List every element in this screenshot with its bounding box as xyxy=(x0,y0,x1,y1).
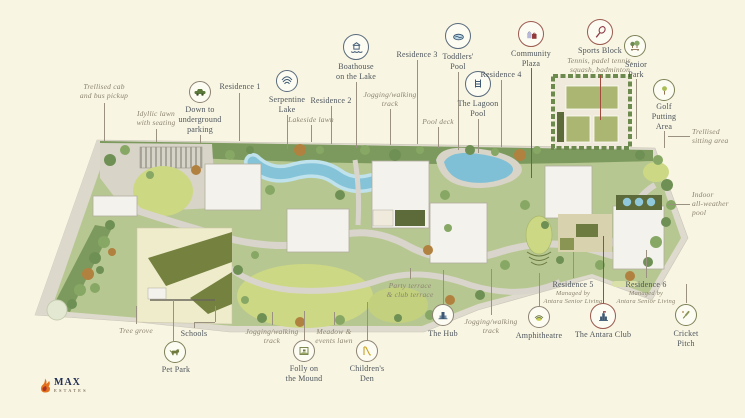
label-cricket-pitch: Cricket Pitch xyxy=(674,329,699,349)
label-folly: Folly on the Mound xyxy=(286,364,323,384)
residence-1-building xyxy=(205,164,261,210)
label-senior-park: Senior Park xyxy=(625,60,647,80)
label-golf-putting: Golf Putting Area xyxy=(652,102,677,131)
residence-4-building xyxy=(430,203,487,263)
leader-sports-block xyxy=(600,75,601,120)
logo-brand-subtext: ESTATES xyxy=(54,388,88,394)
label-toddlers-pool: Toddlers' Pool xyxy=(442,52,473,72)
label-pool-deck: Pool deck xyxy=(422,117,454,126)
slide-icon xyxy=(356,340,378,362)
label-tree-grove: Tree grove xyxy=(119,326,153,335)
sports-block-feature xyxy=(553,76,630,148)
label-underground-parking: Down to underground parking xyxy=(179,105,222,134)
label-idyllic-lawn: Idyllic lawn with seating xyxy=(137,109,176,127)
leader-lagoon-pool xyxy=(478,119,479,153)
golf-putting-green xyxy=(643,162,669,182)
label-lakeside-lawn: Lakeside lawn xyxy=(288,115,334,124)
masterplan-page: Trellised cab and bus pickup Idyllic law… xyxy=(0,0,745,418)
label-antara-club: The Antara Club xyxy=(575,330,631,340)
leader-jogging-track-top xyxy=(390,109,391,145)
label-residence-4: Residence 4 xyxy=(480,70,521,80)
label-sports-block: Sports Block xyxy=(578,46,622,56)
label-lagoon-pool: The Lagoon Pool xyxy=(458,99,499,119)
club-building-icon xyxy=(590,303,616,329)
trellis-structure xyxy=(140,147,202,168)
golf-icon xyxy=(653,79,675,101)
shopping-bags-icon xyxy=(518,21,544,47)
label-community-plaza: Community Plaza xyxy=(511,49,551,69)
label-schools: Schools xyxy=(181,329,208,339)
label-indoor-pool: Indoor all-weather pool xyxy=(692,190,729,217)
leader-schools-bracket xyxy=(194,322,215,323)
label-amphitheatre: Amphitheatre xyxy=(516,331,562,341)
label-residence-5-sub: Managed by Antara Senior Living xyxy=(544,290,603,306)
amphitheatre-icon xyxy=(528,306,550,328)
leader-antara-club xyxy=(603,236,604,304)
lone-tree xyxy=(47,300,67,320)
idyllic-lawn-feature xyxy=(133,166,193,216)
leader-community-plaza xyxy=(531,68,532,178)
leader-party-terrace xyxy=(410,268,411,279)
leader-the-hub xyxy=(443,270,444,304)
label-boathouse: Boathouse on the Lake xyxy=(336,62,376,82)
label-jogging-track-br: Jogging/walking track xyxy=(465,317,518,335)
max-estates-logo: MAX ESTATES xyxy=(40,378,88,399)
leader-childrens-den xyxy=(367,302,368,340)
leader-senior-park xyxy=(636,79,637,139)
label-residence-2: Residence 2 xyxy=(310,96,351,106)
label-sports-block-sub: Tennis, padel tennis, squash, badminton xyxy=(567,56,633,74)
leader-folly xyxy=(304,311,305,340)
car-icon xyxy=(189,81,211,103)
building-icon xyxy=(432,304,454,326)
label-residence-5: Residence 5 xyxy=(552,280,593,290)
park-bench-icon xyxy=(624,35,646,57)
label-residence-1: Residence 1 xyxy=(219,82,260,92)
leader-cricket-pitch xyxy=(686,284,687,303)
label-meadow: Meadow & events lawn xyxy=(315,327,352,345)
west-pavilion-building xyxy=(93,196,137,216)
label-pet-park: Pet Park xyxy=(162,365,191,375)
leader-tree-grove xyxy=(136,306,137,324)
flame-icon xyxy=(40,378,51,399)
label-residence-3: Residence 3 xyxy=(396,50,437,60)
leader-residence-5 xyxy=(573,252,574,278)
label-serpentine-lake: Serpentine Lake xyxy=(269,95,305,115)
leader-boathouse xyxy=(356,82,357,148)
leader-pool-deck xyxy=(438,127,439,148)
cricket-bat-icon xyxy=(675,304,697,326)
leader-schools-right xyxy=(215,306,216,322)
toddler-pool-icon xyxy=(445,23,471,49)
label-trellised-sitting: Trellised sitting area xyxy=(692,127,729,145)
leader-residence-3 xyxy=(417,60,418,144)
schools-block xyxy=(137,228,232,324)
leader-residence-4 xyxy=(501,80,502,147)
leader-jogging-track-br xyxy=(491,269,492,315)
leader-trellised-sitting xyxy=(668,136,690,137)
leader-trellised-cab xyxy=(104,103,105,141)
leader-indoor-pool xyxy=(668,204,690,205)
tennis-racket-icon xyxy=(587,19,613,45)
leader-jogging-track-bl xyxy=(272,312,273,325)
label-the-hub: The Hub xyxy=(428,329,458,339)
leader-underground-parking xyxy=(200,135,201,143)
leader-residence-1 xyxy=(239,93,240,141)
label-party-terrace: Party terrace & club terrace xyxy=(387,281,434,299)
residence-5-building xyxy=(545,166,592,218)
the-hub-building xyxy=(373,210,425,226)
leader-lakeside-lawn xyxy=(311,125,312,142)
leader-residence-2 xyxy=(331,106,332,144)
label-jogging-track-top: Jogging/walking track xyxy=(364,90,417,108)
logo-brand-text: MAX xyxy=(54,378,88,388)
label-residence-6: Residence 6 xyxy=(625,280,666,290)
boathouse-icon xyxy=(343,34,369,60)
label-trellised-cab: Trellised cab and bus pickup xyxy=(80,82,128,100)
leader-amphitheatre xyxy=(539,273,540,306)
leader-idyllic-lawn xyxy=(156,129,157,142)
indoor-pool-feature xyxy=(616,195,662,210)
dog-icon xyxy=(164,341,186,363)
leader-schools-left xyxy=(194,322,195,328)
leader-golf-putting xyxy=(664,131,665,148)
leader-residence-6 xyxy=(646,250,647,278)
residence-2-building xyxy=(287,209,349,252)
label-childrens-den: Children's Den xyxy=(350,364,385,384)
lake-icon xyxy=(276,70,298,92)
leader-pet-park xyxy=(173,300,174,341)
label-jogging-track-bl: Jogging/walking track xyxy=(246,327,299,345)
leader-meadow xyxy=(334,312,335,325)
label-residence-6-sub: Managed by Antara Senior Living xyxy=(617,290,676,306)
